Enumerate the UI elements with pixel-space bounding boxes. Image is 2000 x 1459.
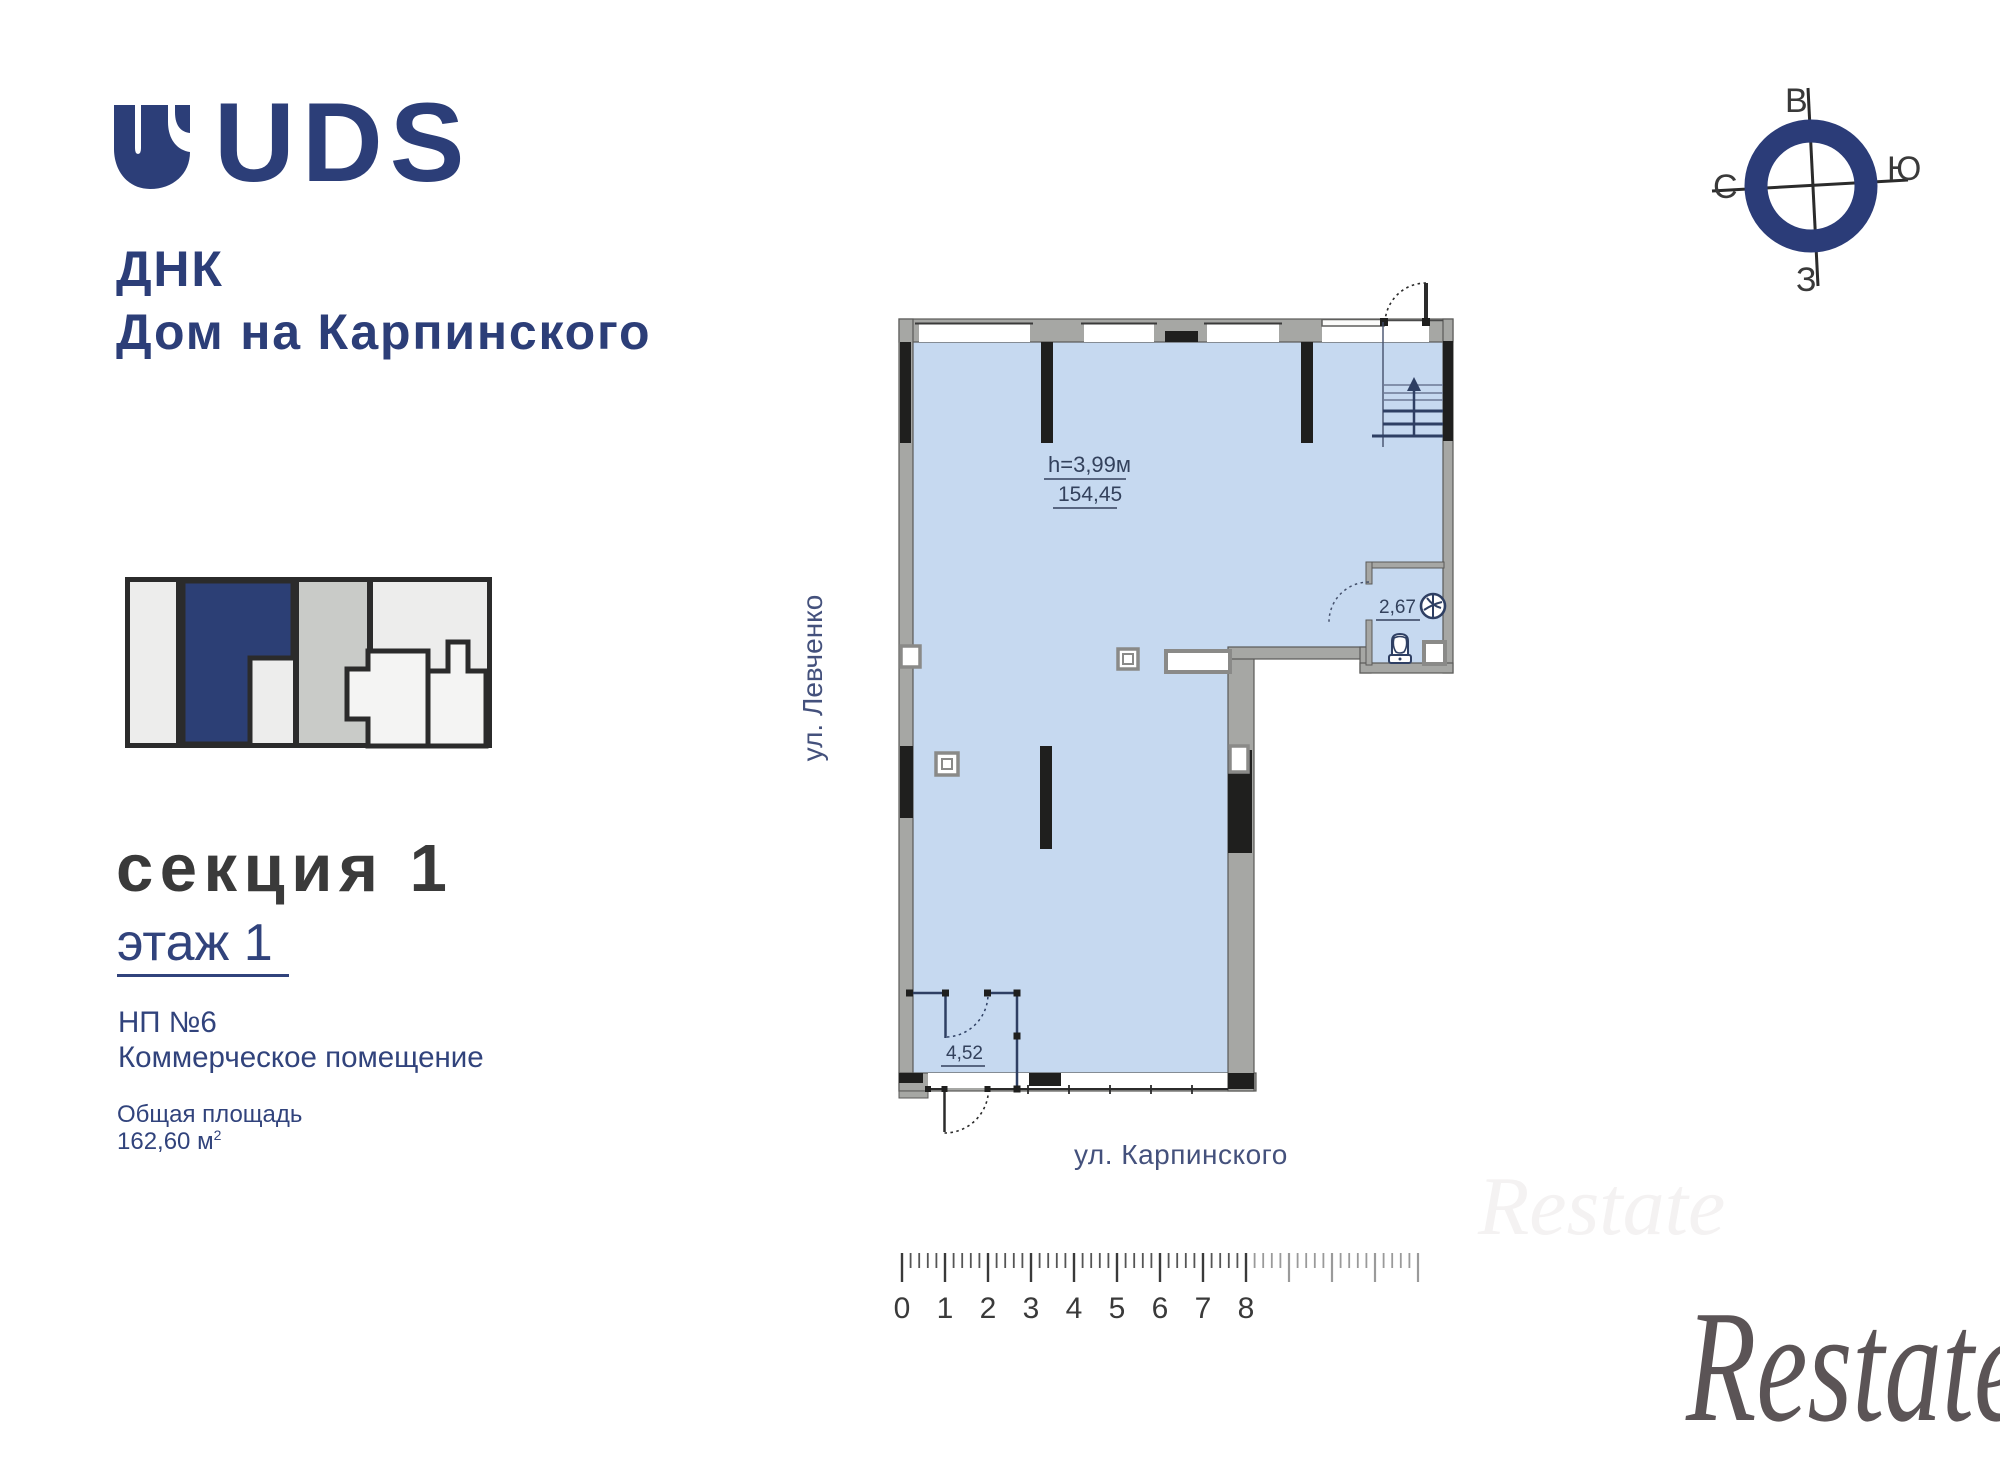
svg-text:154,45: 154,45: [1058, 483, 1122, 506]
svg-text:4: 4: [1066, 1292, 1083, 1325]
svg-text:2: 2: [980, 1292, 997, 1325]
svg-text:1: 1: [937, 1292, 954, 1325]
svg-text:6: 6: [1152, 1292, 1169, 1325]
svg-text:3: 3: [1023, 1292, 1040, 1325]
svg-text:h=3,99м: h=3,99м: [1048, 452, 1131, 477]
svg-text:4,52: 4,52: [946, 1043, 983, 1064]
svg-text:7: 7: [1195, 1292, 1212, 1325]
svg-text:2,67: 2,67: [1379, 597, 1416, 618]
svg-text:8: 8: [1238, 1292, 1255, 1325]
svg-text:0: 0: [894, 1292, 911, 1325]
svg-text:5: 5: [1109, 1292, 1126, 1325]
